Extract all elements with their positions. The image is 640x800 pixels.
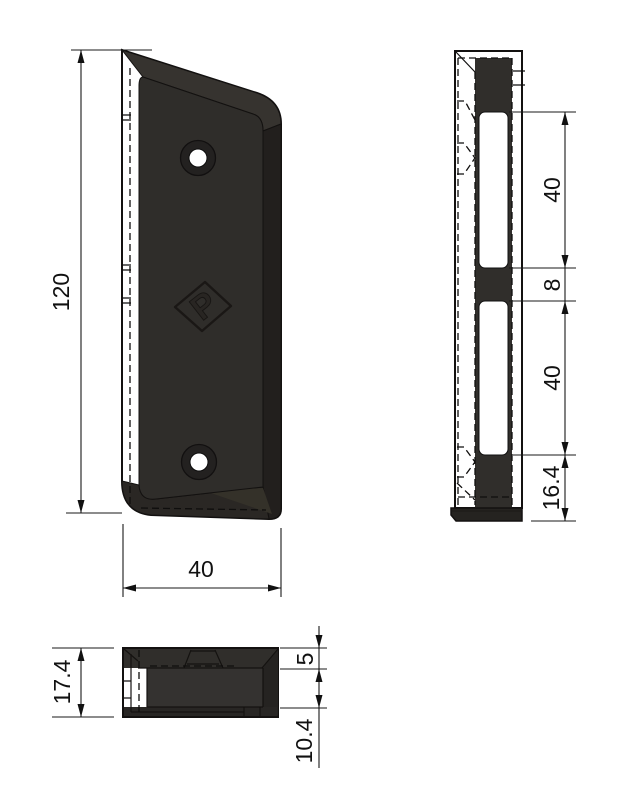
front-view: P — [122, 50, 281, 519]
side-slot-bottom — [479, 301, 508, 455]
dim-front-height: 120 — [48, 50, 152, 513]
technical-drawing-canvas: P — [0, 0, 640, 800]
side-right-ticks — [513, 71, 525, 85]
dim-label-front-height: 120 — [48, 273, 74, 311]
dim-label-side-slot-top: 40 — [539, 177, 565, 203]
dim-bottom-right-stack: 5 10.4 — [280, 626, 327, 768]
dim-label-side-bottom: 16.4 — [538, 465, 564, 510]
dim-side-stack: 40 8 40 16.4 — [509, 112, 576, 521]
front-hole-bottom — [182, 445, 217, 480]
dim-label-bottom-total: 17.4 — [49, 659, 75, 704]
side-view — [451, 51, 525, 521]
bottom-inner-face — [147, 668, 263, 707]
dim-label-front-width: 40 — [188, 556, 214, 582]
bottom-top-band — [124, 649, 277, 668]
dim-label-side-slot-bottom: 40 — [539, 365, 565, 391]
dim-label-bottom-inner: 10.4 — [291, 718, 317, 763]
dim-label-bottom-top: 5 — [292, 653, 318, 666]
side-slot-top — [479, 112, 508, 268]
front-left-notches — [122, 115, 131, 303]
side-bottom-step — [451, 508, 522, 521]
dim-label-side-gap: 8 — [539, 279, 565, 292]
drawing-page: P — [0, 0, 640, 800]
bottom-view — [123, 648, 278, 717]
front-right-bevel — [263, 124, 281, 519]
front-hole-top — [181, 141, 216, 176]
dim-bottom-total: 17.4 — [49, 648, 114, 717]
dim-front-width: 40 — [123, 524, 281, 597]
